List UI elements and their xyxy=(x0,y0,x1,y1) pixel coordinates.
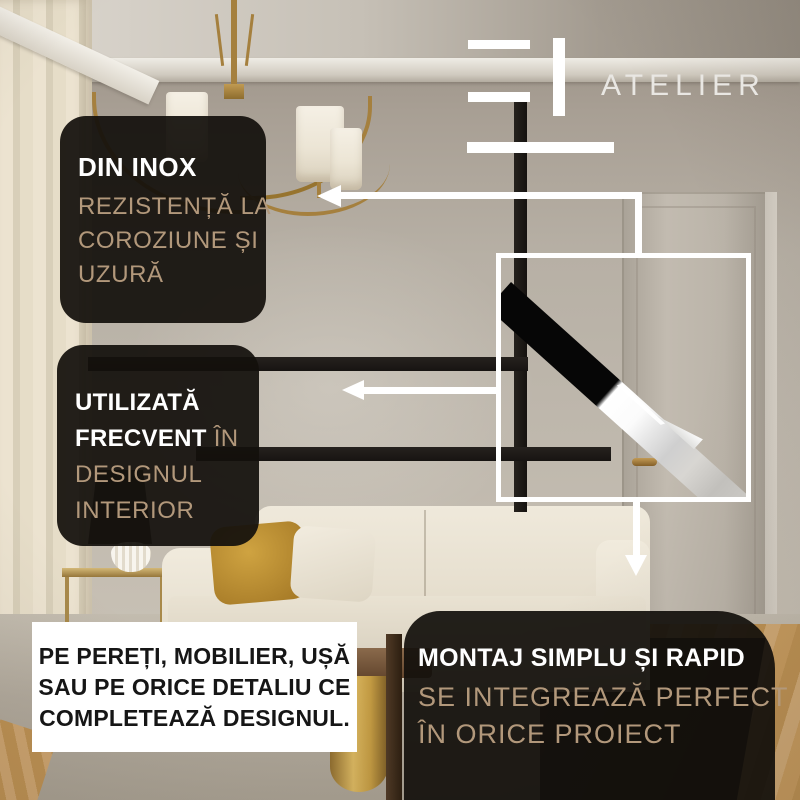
logo-bar-icon xyxy=(467,142,614,153)
panel-usage-tail-word: ÎN xyxy=(214,425,239,452)
arrow-left-icon xyxy=(342,380,364,400)
panel-material-line: UZURĂ xyxy=(78,258,248,292)
elbow-arrow-vertical-segment xyxy=(635,192,642,256)
poster-canvas: ATELIER DIN INOX REZISTENȚĂ LA COROZIUNE… xyxy=(0,0,800,800)
down-arrow-line xyxy=(633,502,640,556)
panel-material-title: DIN INOX xyxy=(78,152,248,182)
panel-material-line: COROZIUNE ȘI xyxy=(78,224,248,258)
panel-material: DIN INOX REZISTENȚĂ LA COROZIUNE ȘI UZUR… xyxy=(60,116,266,323)
logo-bar-icon xyxy=(553,38,565,116)
panel-installation-line: SE INTEGREAZĂ PERFECT xyxy=(418,679,775,716)
panel-installation-title: MONTAJ SIMPLU ȘI RAPID xyxy=(418,641,775,675)
panel-applications-line: PE PEREȚI, MOBILIER, UȘĂ xyxy=(32,641,357,672)
panel-applications-line: SAU PE ORICE DETALIU CE xyxy=(32,672,357,703)
panel-usage-bold-word: FRECVENT xyxy=(75,425,207,452)
panel-applications-line: COMPLETEAZĂ DESIGNUL. xyxy=(32,703,357,734)
panel-usage-bold-line: FRECVENTÎN xyxy=(75,421,241,457)
panel-applications: PE PEREȚI, MOBILIER, UȘĂ SAU PE ORICE DE… xyxy=(32,622,357,752)
product-detail-frame xyxy=(496,253,751,502)
arrow-down-icon xyxy=(625,555,647,576)
inox-strip-product xyxy=(496,282,751,502)
metal-sheen-highlight xyxy=(616,384,665,425)
panel-installation-line: ÎN ORICE PROIECT xyxy=(418,716,775,753)
logo-bar-icon xyxy=(468,92,530,102)
brand-name: ATELIER xyxy=(601,69,766,103)
logo-bar-icon xyxy=(468,40,530,49)
elbow-arrow-horizontal-segment xyxy=(340,192,642,199)
middle-arrow-line xyxy=(363,387,501,394)
panel-usage-bold-line: UTILIZATĂ xyxy=(75,385,241,421)
panel-usage-line: DESIGNUL xyxy=(75,457,241,493)
panel-usage: UTILIZATĂ FRECVENTÎN DESIGNUL INTERIOR xyxy=(57,345,259,546)
panel-usage-line: INTERIOR xyxy=(75,493,241,529)
arrow-left-icon xyxy=(317,185,341,207)
panel-installation: MONTAJ SIMPLU ȘI RAPID SE INTEGREAZĂ PER… xyxy=(404,611,775,800)
panel-material-line: REZISTENȚĂ LA xyxy=(78,190,248,224)
protective-film-peel xyxy=(657,405,704,450)
